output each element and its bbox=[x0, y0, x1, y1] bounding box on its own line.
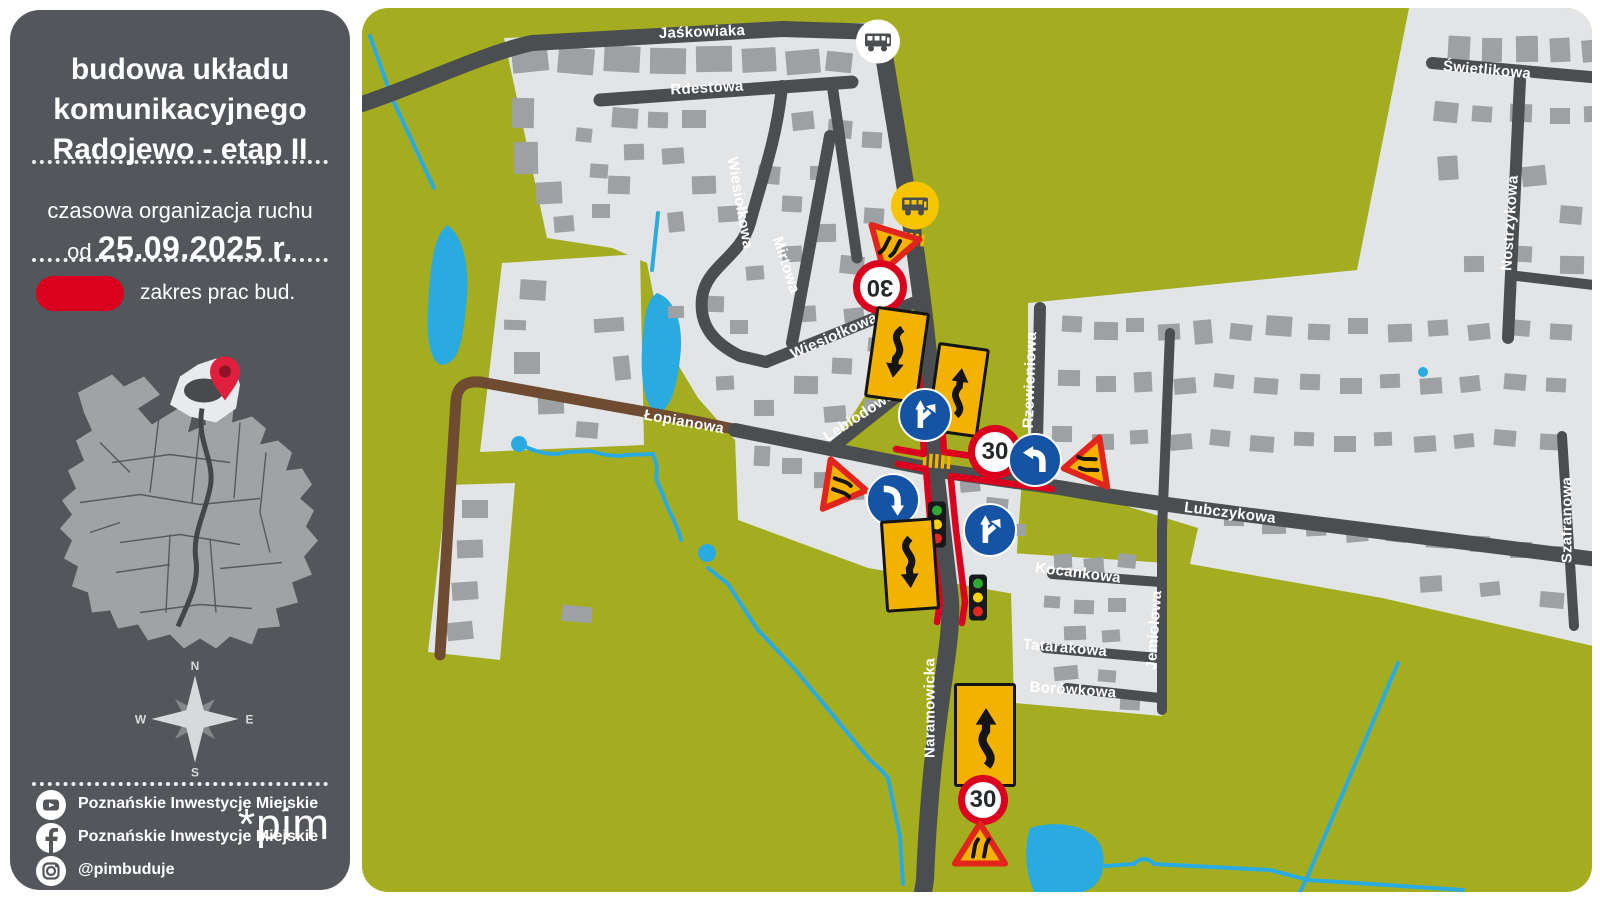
compass-e: E bbox=[245, 712, 253, 726]
detour-arrow-sign bbox=[954, 683, 1016, 787]
traffic-light-icon bbox=[969, 575, 987, 626]
road-narrows-sign bbox=[949, 815, 1011, 876]
sidebar: budowa układu komunikacyjnego Radojewo -… bbox=[10, 10, 350, 890]
road-narrows-sign bbox=[1050, 430, 1120, 501]
pim-logo: *pim bbox=[238, 800, 330, 850]
page-title: budowa układu komunikacyjnego Radojewo -… bbox=[10, 50, 350, 170]
mandatory-direction-sign bbox=[898, 388, 952, 442]
instagram-label: @pimbuduje bbox=[78, 861, 174, 879]
facebook-icon bbox=[36, 823, 66, 853]
title-line-2: komunikacyjnego bbox=[53, 93, 306, 126]
street-label-jaskowiaka: Jaśkowiaka bbox=[659, 22, 746, 42]
title-line-1: budowa układu bbox=[71, 53, 289, 86]
work-zone-swatch bbox=[36, 276, 124, 311]
dotted-divider bbox=[32, 782, 328, 786]
street-label-rzewieniowa: Rzewieniowa bbox=[1020, 331, 1040, 428]
mandatory-direction-sign bbox=[963, 503, 1017, 557]
compass-w: W bbox=[135, 712, 147, 726]
subtitle: czasowa organizacja ruchu bbox=[10, 198, 350, 224]
poznan-locator-map bbox=[20, 310, 340, 655]
compass-rose: N E S W bbox=[122, 658, 268, 780]
compass-s: S bbox=[191, 766, 199, 780]
instagram-icon bbox=[36, 856, 66, 886]
detour-arrow-sign bbox=[880, 517, 940, 613]
residential-zones bbox=[428, 8, 1592, 716]
compass-n: N bbox=[191, 659, 200, 673]
traffic-map: Jaśkowiaka Rdestowa Wiesiołkowa Mirtowa … bbox=[362, 8, 1592, 892]
legend: zakres prac bud. bbox=[10, 274, 350, 314]
street-label-szafranowa: Szafranowa bbox=[1559, 477, 1576, 563]
legend-label: zakres prac bud. bbox=[140, 281, 295, 305]
compass-main-points bbox=[151, 675, 238, 762]
infographic-root: budowa układu komunikacyjnego Radojewo -… bbox=[0, 0, 1600, 900]
dotted-divider bbox=[32, 258, 328, 262]
youtube-icon bbox=[36, 790, 66, 820]
street-label-naramowicka: Naramowicka bbox=[922, 658, 939, 758]
dotted-divider bbox=[32, 160, 328, 164]
bus-stop-icon bbox=[856, 20, 900, 69]
